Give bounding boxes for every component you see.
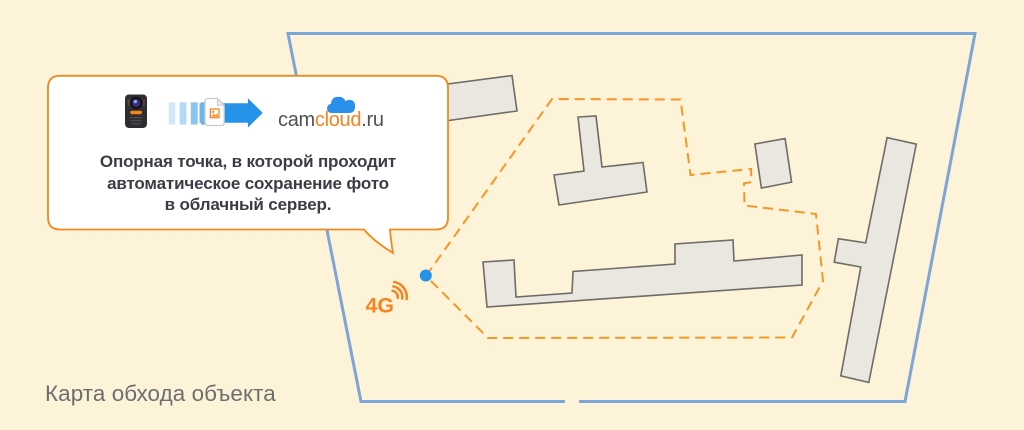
- svg-text:4G: 4G: [366, 294, 394, 318]
